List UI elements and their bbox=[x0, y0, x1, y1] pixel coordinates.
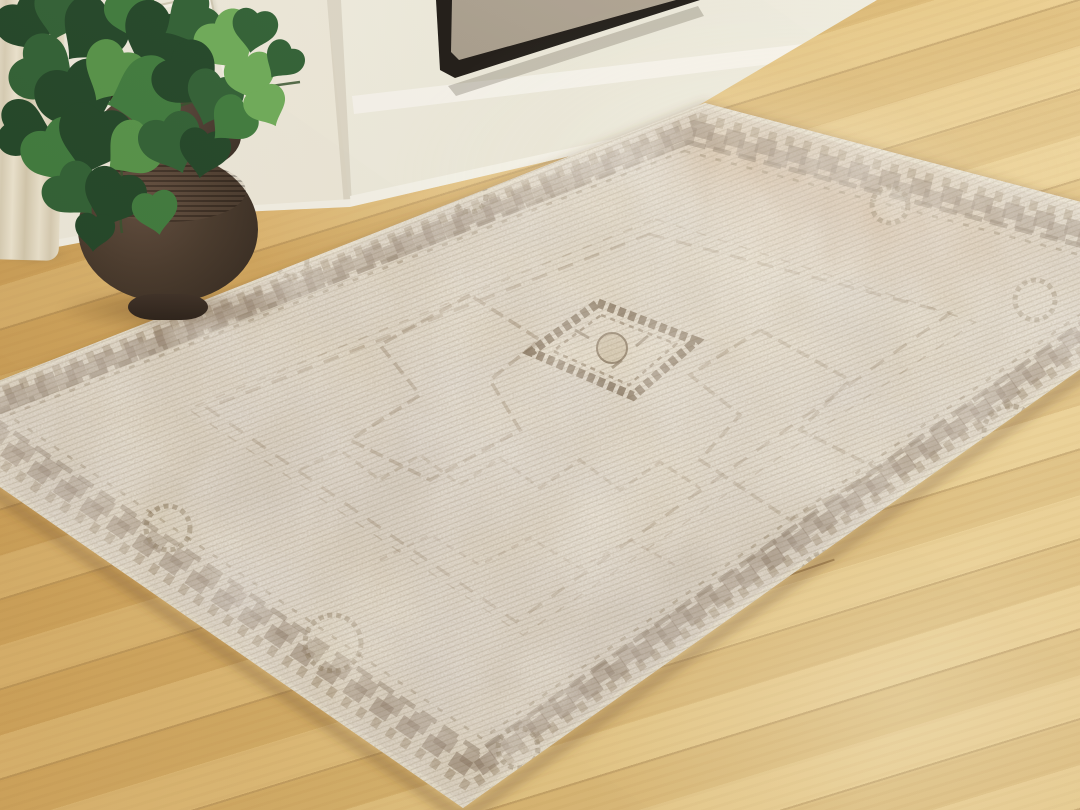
vase-foot bbox=[128, 294, 208, 320]
living-room-rug-photo bbox=[0, 0, 1080, 810]
plant-leaves bbox=[0, 0, 310, 253]
pothos-plant bbox=[0, 0, 358, 270]
